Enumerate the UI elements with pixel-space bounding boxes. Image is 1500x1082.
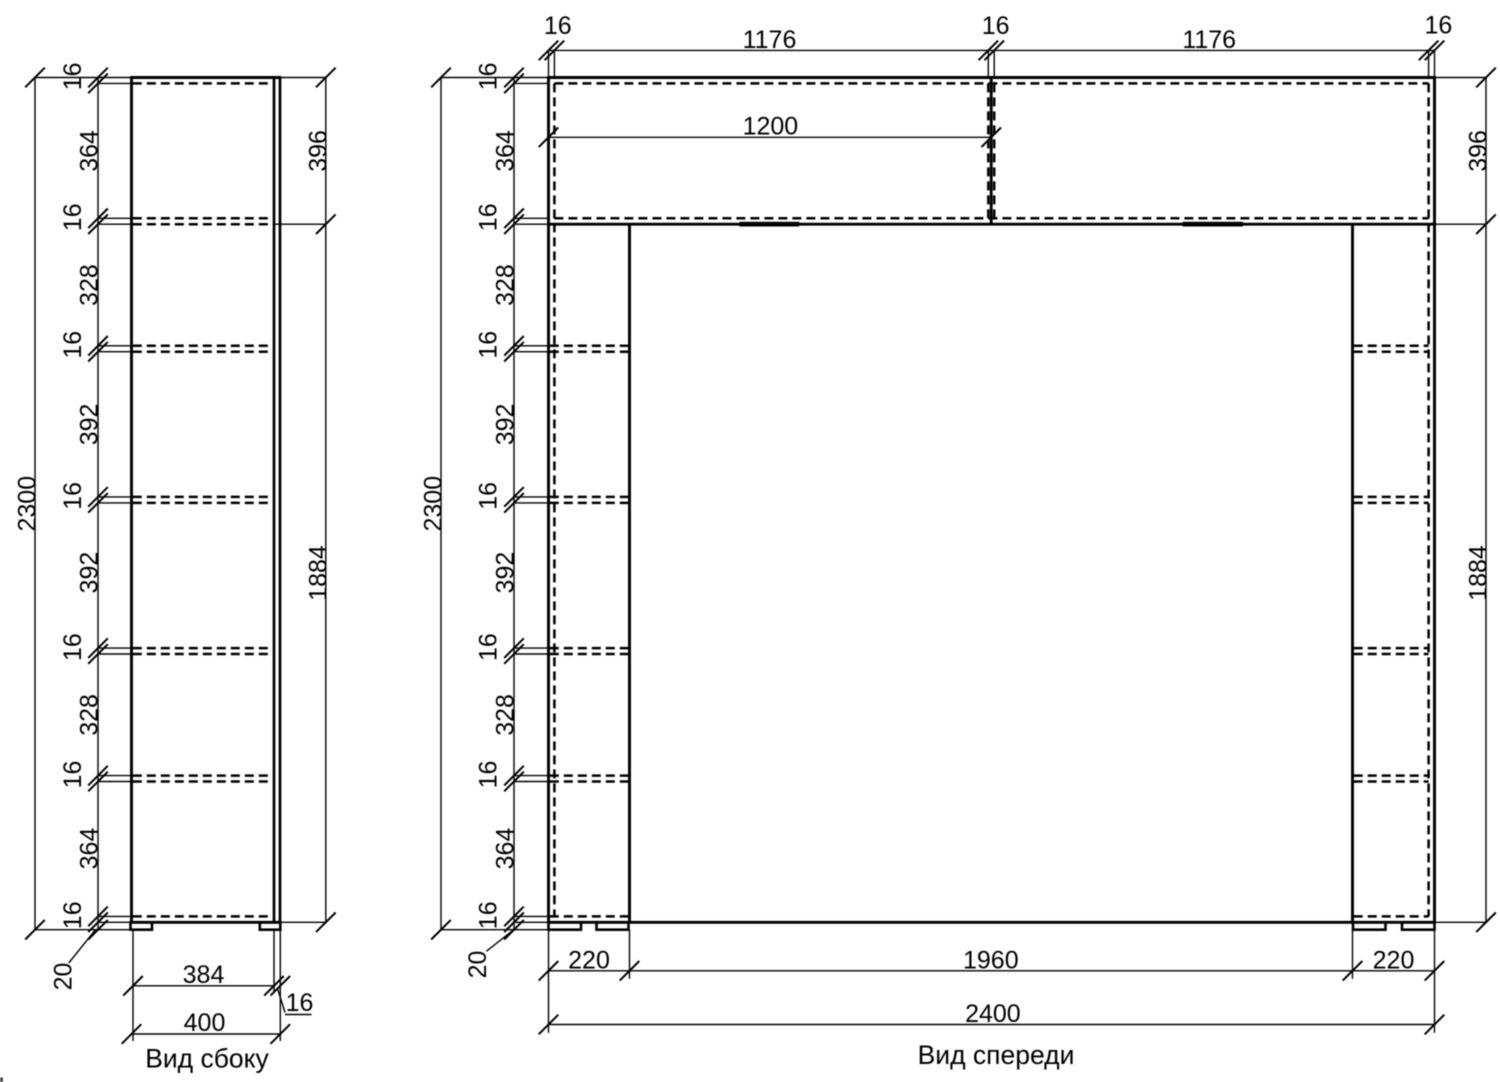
svg-text:328: 328: [492, 694, 520, 736]
svg-text:392: 392: [492, 552, 520, 594]
svg-text:16: 16: [475, 331, 503, 359]
svg-text:2300: 2300: [420, 476, 448, 532]
svg-text:364: 364: [76, 828, 104, 870]
svg-text:16: 16: [982, 12, 1010, 40]
svg-text:Вид сбоку: Вид сбоку: [145, 1044, 269, 1074]
svg-text:20: 20: [464, 951, 492, 979]
svg-text:16: 16: [59, 633, 87, 661]
svg-text:16: 16: [59, 761, 87, 789]
svg-text:16: 16: [286, 989, 314, 1017]
svg-text:16: 16: [475, 482, 503, 510]
svg-text:16: 16: [544, 12, 572, 40]
svg-text:384: 384: [183, 961, 225, 989]
svg-text:220: 220: [568, 946, 610, 974]
svg-text:16: 16: [59, 482, 87, 510]
svg-text:20: 20: [50, 963, 78, 991]
svg-text:1884: 1884: [304, 545, 332, 601]
svg-text:364: 364: [492, 130, 520, 172]
svg-text:1884: 1884: [1465, 545, 1493, 601]
svg-text:16: 16: [1424, 12, 1452, 40]
svg-text:16: 16: [59, 331, 87, 359]
svg-text:16: 16: [475, 203, 503, 231]
svg-text:364: 364: [492, 828, 520, 870]
svg-text:1960: 1960: [963, 946, 1019, 974]
svg-text:2300: 2300: [14, 476, 42, 532]
svg-text:400: 400: [184, 1009, 226, 1037]
svg-text:16: 16: [59, 203, 87, 231]
svg-text:1200: 1200: [743, 113, 799, 141]
svg-text:16: 16: [59, 62, 87, 90]
svg-text:396: 396: [304, 130, 332, 172]
svg-text:16: 16: [59, 901, 87, 929]
svg-text:396: 396: [1465, 130, 1493, 172]
svg-text:392: 392: [492, 404, 520, 446]
svg-text:Вид спереди: Вид спереди: [918, 1040, 1075, 1070]
svg-text:2400: 2400: [965, 1000, 1021, 1028]
svg-text:1176: 1176: [743, 26, 797, 54]
svg-text:392: 392: [76, 404, 104, 446]
svg-text:328: 328: [492, 264, 520, 306]
svg-text:328: 328: [76, 694, 104, 736]
svg-text:16: 16: [475, 633, 503, 661]
svg-text:16: 16: [475, 62, 503, 90]
svg-text:328: 328: [76, 264, 104, 306]
svg-text:392: 392: [76, 552, 104, 594]
svg-text:220: 220: [1373, 946, 1415, 974]
svg-text:16: 16: [475, 761, 503, 789]
svg-text:1176: 1176: [1182, 26, 1236, 54]
svg-text:16: 16: [475, 901, 503, 929]
svg-text:364: 364: [76, 130, 104, 172]
